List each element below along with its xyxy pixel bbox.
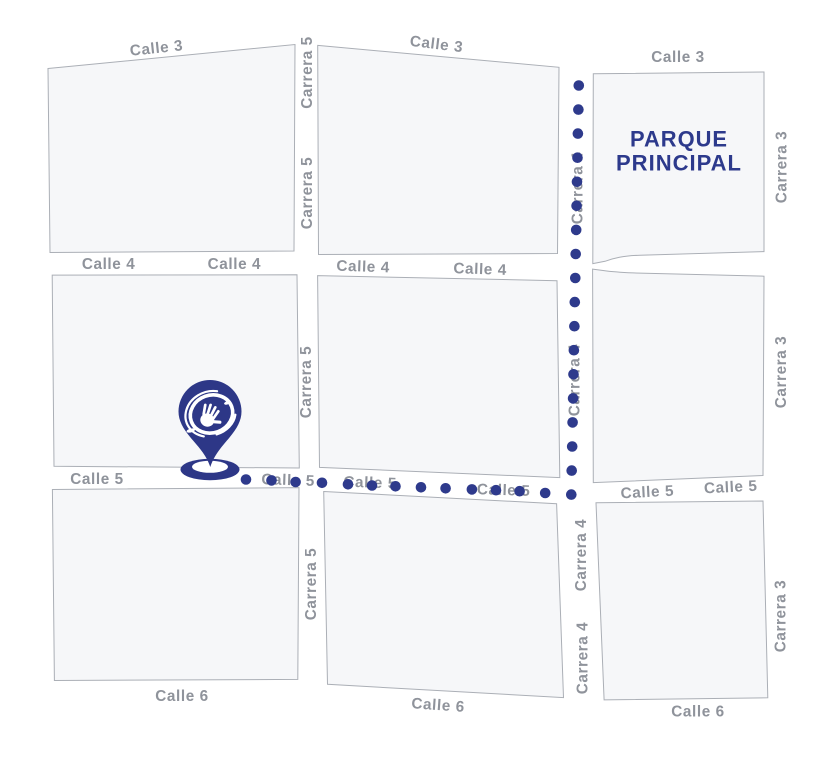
- svg-text:Calle 5: Calle 5: [620, 483, 674, 503]
- svg-text:Carrera 4: Carrera 4: [573, 519, 590, 592]
- svg-text:Calle 6: Calle 6: [155, 688, 209, 705]
- svg-text:Calle 4: Calle 4: [453, 260, 507, 279]
- svg-text:Carrera 5: Carrera 5: [299, 157, 316, 230]
- svg-text:Calle 3: Calle 3: [651, 49, 705, 66]
- svg-text:Calle 5: Calle 5: [704, 478, 758, 498]
- svg-text:Calle 5: Calle 5: [70, 471, 124, 488]
- svg-text:Carrera 5: Carrera 5: [303, 548, 320, 621]
- svg-text:Carrera 3: Carrera 3: [773, 336, 790, 409]
- svg-text:PRINCIPAL: PRINCIPAL: [616, 150, 742, 175]
- svg-text:Carrera 3: Carrera 3: [773, 580, 790, 653]
- svg-text:Carrera 5: Carrera 5: [299, 36, 316, 109]
- svg-text:Calle 4: Calle 4: [336, 258, 390, 277]
- svg-text:Calle 4: Calle 4: [82, 256, 136, 273]
- svg-text:Carrera 4: Carrera 4: [575, 622, 592, 695]
- svg-text:Calle 4: Calle 4: [208, 256, 262, 273]
- svg-text:Calle 6: Calle 6: [671, 704, 725, 721]
- svg-text:Carrera 5: Carrera 5: [298, 346, 315, 419]
- svg-text:Carrera 3: Carrera 3: [774, 131, 791, 204]
- svg-text:PARQUE: PARQUE: [630, 127, 728, 152]
